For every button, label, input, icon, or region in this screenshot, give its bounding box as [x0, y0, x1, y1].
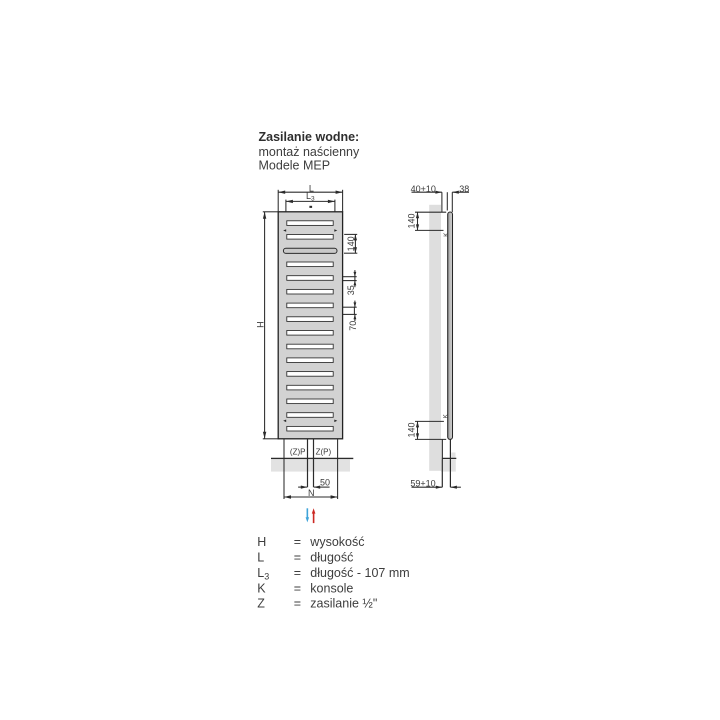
svg-text:Zasilanie wodne:: Zasilanie wodne:: [259, 130, 360, 144]
svg-text:montaż naścienny: montaż naścienny: [259, 145, 361, 159]
svg-text:=: =: [294, 597, 301, 611]
svg-text:=: =: [294, 582, 301, 596]
svg-text:konsole: konsole: [310, 582, 353, 596]
svg-text:70: 70: [348, 321, 358, 331]
svg-text:K: K: [257, 582, 266, 596]
svg-text:(Z)P: (Z)P: [290, 448, 306, 457]
svg-text:L: L: [257, 550, 264, 564]
svg-text:K: K: [444, 233, 450, 237]
svg-text:zasilanie ½": zasilanie ½": [310, 597, 377, 611]
svg-text:długość: długość: [310, 550, 353, 564]
svg-text:140: 140: [407, 213, 417, 228]
svg-text:wysokość: wysokość: [309, 535, 364, 549]
svg-text:długość - 107 mm: długość - 107 mm: [310, 566, 409, 580]
svg-text:Z(P): Z(P): [316, 448, 332, 457]
svg-text:K: K: [444, 414, 450, 418]
svg-text:140: 140: [406, 422, 416, 437]
svg-text:=: =: [294, 535, 301, 549]
svg-text:H: H: [257, 535, 266, 549]
svg-text:50: 50: [320, 477, 330, 487]
svg-text:140: 140: [346, 236, 356, 251]
svg-text:Z: Z: [257, 597, 265, 611]
svg-text:L3: L3: [257, 566, 269, 582]
svg-text:Modele MEP: Modele MEP: [259, 159, 331, 173]
svg-text:=: =: [294, 550, 301, 564]
svg-text:=: =: [294, 566, 301, 580]
svg-text:35: 35: [346, 285, 356, 295]
svg-text:H: H: [256, 321, 266, 328]
svg-text:N: N: [308, 488, 315, 498]
